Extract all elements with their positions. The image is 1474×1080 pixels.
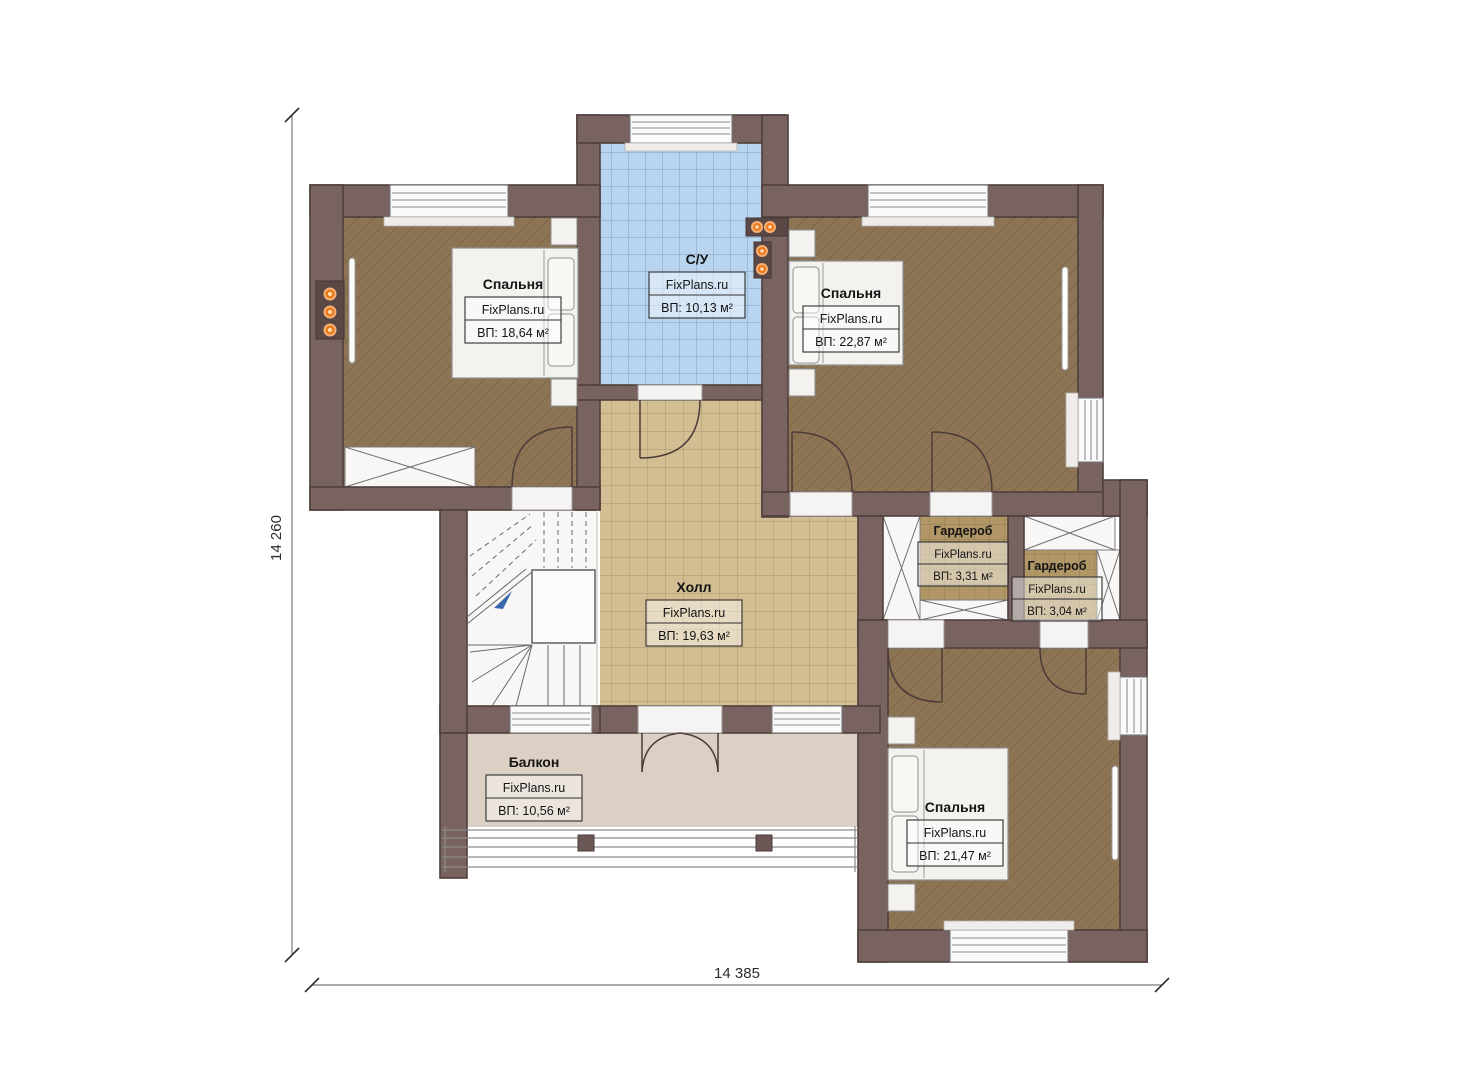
wall-light-icon: [324, 306, 337, 319]
brand-watermark: FixPlans.ru: [663, 606, 726, 620]
closet-x-wardrobe2-top: [1024, 516, 1115, 550]
floor-plan-svg: Спальня FixPlans.ru ВП: 18,64 м² С/У Fix…: [0, 0, 1474, 1080]
brand-watermark: FixPlans.ru: [934, 549, 992, 561]
window-bedroom-tl-top: [384, 185, 514, 226]
dimension-bottom-label: 14 385: [714, 965, 760, 982]
door-opening: [1040, 620, 1088, 648]
room-name: Спальня: [925, 799, 985, 815]
window-bedroom-br-bottom: [944, 921, 1074, 962]
nightstand: [551, 218, 577, 245]
wall: [762, 115, 788, 517]
room-name: Спальня: [821, 285, 881, 301]
stairwell-void: [532, 570, 595, 643]
wall: [858, 620, 888, 962]
nightstand: [789, 369, 815, 396]
room-area: ВП: 21,47 м²: [919, 849, 991, 863]
wall-light-icon: [324, 324, 337, 337]
nightstand: [789, 230, 815, 257]
window-hall-bottom: [772, 706, 842, 733]
door-opening: [790, 492, 852, 516]
room-name: Холл: [676, 579, 711, 595]
door-opening: [638, 706, 722, 733]
wall-light-icon: [756, 245, 768, 257]
wall: [440, 510, 467, 733]
railing-post: [756, 835, 772, 851]
balcony-railing: [442, 826, 858, 872]
room-name: Гардероб: [933, 524, 992, 538]
room-area: ВП: 19,63 м²: [658, 629, 730, 643]
wall-light-icon: [324, 288, 337, 301]
brand-watermark: FixPlans.ru: [666, 278, 729, 292]
closet-x-bedroom-tl: [345, 447, 475, 487]
room-name: Гардероб: [1027, 559, 1086, 573]
brand-watermark: FixPlans.ru: [820, 312, 883, 326]
closet-x-wardrobe1-bottom: [920, 600, 1008, 620]
room-area: ВП: 10,56 м²: [498, 804, 570, 818]
window-bedroom-br-right: [1108, 672, 1147, 740]
nightstand: [551, 379, 577, 406]
wall: [577, 115, 600, 510]
brand-watermark: FixPlans.ru: [1028, 584, 1086, 596]
window-bathroom-top: [625, 115, 737, 151]
wall-light-icon: [751, 221, 763, 233]
floor-plan-page: Спальня FixPlans.ru ВП: 18,64 м² С/У Fix…: [0, 0, 1474, 1080]
door-opening: [930, 492, 992, 516]
bathroom-floor: [600, 143, 762, 385]
room-name: Балкон: [509, 754, 560, 770]
railing-post: [578, 835, 594, 851]
radiator: [349, 258, 355, 363]
dimension-left-label: 14 260: [268, 515, 285, 561]
wall: [310, 185, 343, 510]
radiator: [1062, 267, 1068, 370]
room-area: ВП: 22,87 м²: [815, 335, 887, 349]
wall-light-icon: [756, 263, 768, 275]
door-opening: [888, 620, 944, 648]
room-area: ВП: 10,13 м²: [661, 301, 733, 315]
brand-watermark: FixPlans.ru: [503, 781, 566, 795]
door-opening: [512, 487, 572, 510]
door-opening: [638, 385, 702, 400]
room-name: С/У: [686, 251, 709, 267]
room-area: ВП: 3,31 м²: [933, 571, 993, 583]
room-area: ВП: 18,64 м²: [477, 326, 549, 340]
window-bedroom-tr-top: [862, 185, 994, 226]
room-name: Спальня: [483, 276, 543, 292]
window-stairs-bottom: [510, 706, 592, 733]
window-bedroom-tr-right: [1066, 393, 1103, 467]
room-area: ВП: 3,04 м²: [1027, 606, 1087, 618]
brand-watermark: FixPlans.ru: [482, 303, 545, 317]
brand-watermark: FixPlans.ru: [924, 826, 987, 840]
nightstand: [888, 717, 915, 744]
closet-x-wardrobe1-left: [883, 516, 920, 620]
wall: [440, 733, 467, 878]
wall-light-icon: [764, 221, 776, 233]
radiator: [1112, 766, 1118, 860]
nightstand: [888, 884, 915, 911]
